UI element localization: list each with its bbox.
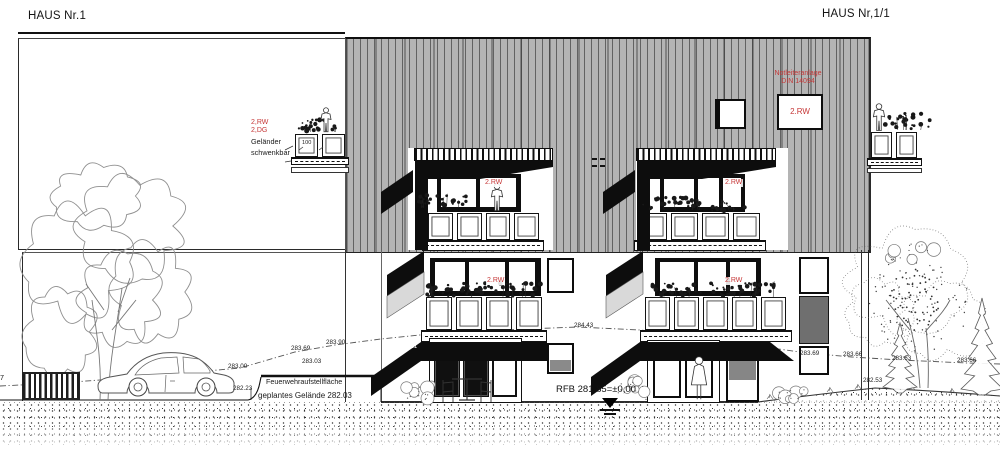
- rfb-datum-label: RFB 281,85=±0,00: [556, 384, 636, 395]
- decor-svg: [0, 0, 1000, 452]
- rw-label-og-left: 2.RW: [486, 277, 505, 285]
- elevation-label: 283.66: [957, 357, 976, 364]
- elevation-label: 283.66: [843, 351, 862, 358]
- rw-label-dormer-right: 2.RW: [724, 179, 743, 187]
- elevation-label: 283.90: [326, 339, 345, 346]
- elevation-label: 284.43: [574, 322, 593, 329]
- neighbor-balcony-note: 2,RW 2,DG Geländer schwenkbar: [251, 119, 290, 158]
- elevation-label: 283.63: [892, 355, 911, 362]
- elevation-label: 284.21: [398, 343, 417, 350]
- fire-area-label: Feuerwehraufstellfläche: [266, 377, 342, 386]
- elevation-label: 283.03: [302, 358, 321, 365]
- planned-ground-label: geplantes Gelände 282.03: [258, 391, 352, 400]
- title-left: HAUS Nr.1: [28, 10, 86, 22]
- elevation-label: 282.23: [233, 385, 252, 392]
- elevation-label: 283.00: [228, 363, 247, 370]
- title-right: HAUS Nr,1/1: [822, 8, 890, 20]
- left-cut-label: 7: [0, 373, 4, 382]
- elevation-drawing: 2.RW Notleiteranlage DIN 14094: [0, 0, 1000, 452]
- neighbor-balcony-dim: 100: [302, 140, 311, 146]
- elevation-label: 283.69: [291, 345, 310, 352]
- elevation-label: 283.69: [800, 350, 819, 357]
- rw-label-og-right: 2.RW: [724, 277, 743, 285]
- rfb-datum-marker: [602, 398, 618, 408]
- elevation-label: 282.53: [863, 377, 882, 384]
- rw-label-dormer-left: 2.RW: [484, 179, 503, 187]
